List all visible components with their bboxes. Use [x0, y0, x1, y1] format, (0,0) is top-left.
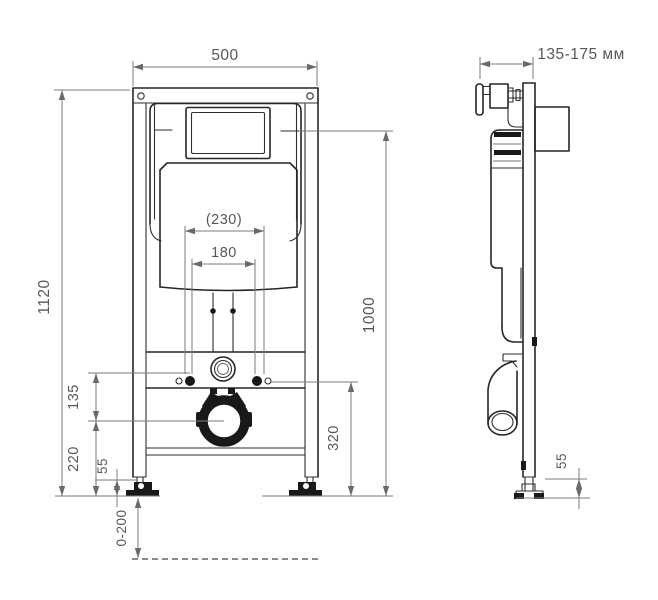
- top-fixing-hole-left: [138, 93, 144, 99]
- adjustable-foot-side: [514, 461, 544, 499]
- dim-foot-height-side: 55: [554, 453, 569, 469]
- dim-actuator-height: 1000: [361, 297, 378, 333]
- cistern-front: [150, 104, 301, 291]
- flush-plate-window: [186, 108, 270, 159]
- side-view-drawing: [476, 83, 569, 499]
- dim-frame-height: 1120: [36, 279, 53, 314]
- cistern-side: [491, 130, 523, 268]
- supply-rods: [210, 293, 236, 352]
- dim-drain-to-floor: 220: [66, 446, 82, 472]
- wall-bracket-box: [535, 107, 569, 151]
- top-fixing-hole-right: [307, 93, 313, 99]
- front-view-drawing: [126, 88, 322, 496]
- dim-bolt-to-drain: 135: [66, 384, 82, 410]
- dim-mount-spacing-inner: 180: [211, 245, 237, 261]
- installation-frame-diagram: 500 1120 (230) 180 135 220 55: [0, 0, 658, 600]
- flush-pipe-socket: [211, 357, 235, 381]
- flush-actuator-side: [476, 84, 523, 127]
- drain-clamp: [196, 388, 252, 442]
- dim-drain-center-height: 320: [326, 425, 342, 451]
- dim-frame-width: 500: [211, 47, 238, 64]
- dim-foot-height-front: 55: [95, 458, 110, 474]
- dim-height-adjust-range: 0-200: [114, 509, 129, 546]
- technical-drawing-svg: 500 1120 (230) 180 135 220 55: [0, 0, 658, 600]
- flush-pipe-side: [502, 268, 537, 367]
- dim-installation-depth: 135-175 мм: [537, 46, 625, 63]
- drain-elbow-side: [488, 361, 517, 435]
- adjustable-feet: [126, 477, 322, 496]
- dimensions-front: 500 1120 (230) 180 135 220 55: [36, 47, 393, 559]
- dim-mount-spacing-outer: (230): [206, 212, 242, 228]
